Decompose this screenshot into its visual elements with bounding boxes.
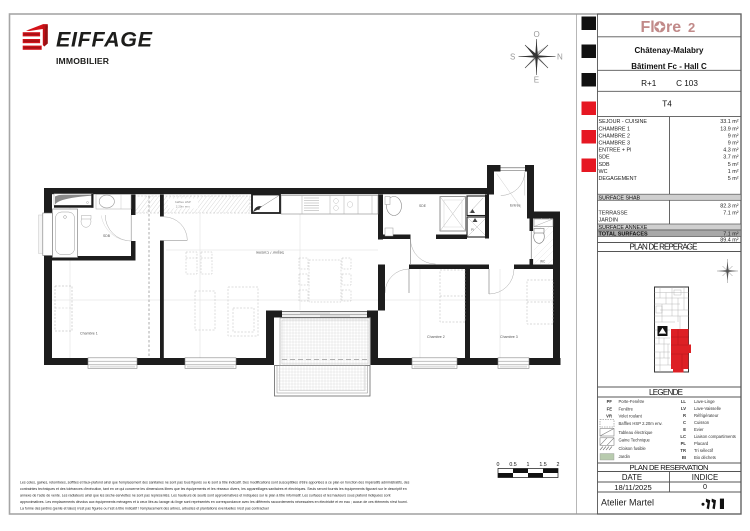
svg-text:Placard: Placard [694,441,709,446]
svg-text:LL: LL [681,399,687,404]
svg-text:O: O [534,30,540,39]
svg-text:Jardin: Jardin [619,454,631,459]
svg-text:La forme des jardins (pente et: La forme des jardins (pente et talus) n'… [20,506,269,510]
svg-text:5 m²: 5 m² [728,176,739,182]
svg-text:JARDIN: JARDIN [599,217,619,223]
svg-text:N: N [557,53,563,62]
svg-text:FE: FE [607,406,613,411]
svg-text:1.5: 1.5 [539,462,546,468]
svg-text:33.1 m²: 33.1 m² [720,119,738,125]
svg-text:INDICE: INDICE [692,473,718,482]
svg-text:SURFACE SHAB: SURFACE SHAB [599,195,641,201]
svg-text:9 m²: 9 m² [728,141,739,147]
svg-text:LV: LV [681,406,686,411]
svg-text:S: S [510,53,515,62]
svg-text:annexe de l'acte de vente. Les: annexe de l'acte de vente. Les radiateur… [20,493,391,497]
svg-text:Gaine Technique: Gaine Technique [619,437,651,442]
svg-text:Cloison fusible: Cloison fusible [619,446,647,451]
svg-text:Liaison compartiments: Liaison compartiments [694,434,736,439]
svg-text:Atelier Martel: Atelier Martel [601,497,654,507]
svg-text:WC: WC [599,169,608,175]
svg-text:SEJOUR - CUISINE: SEJOUR - CUISINE [599,119,648,125]
svg-text:Lave-Vaisselle: Lave-Vaisselle [694,406,722,411]
svg-text:Entrée: Entrée [510,204,521,208]
svg-text:TOTAL SURFACES: TOTAL SURFACES [599,231,649,237]
svg-text:T4: T4 [662,99,672,108]
svg-text:VR: VR [606,414,612,419]
svg-text:Séjour / Cuisine: Séjour / Cuisine [255,251,284,256]
svg-text:82.3 m²: 82.3 m² [720,204,738,210]
svg-text:3.7 m²: 3.7 m² [723,155,738,161]
svg-text:C: C [683,420,686,425]
svg-text:Tri sélectif: Tri sélectif [694,448,714,453]
svg-text:Lave-Linge: Lave-Linge [694,399,715,404]
svg-text:2: 2 [688,20,695,35]
svg-text:TERRASSE: TERRASSE [599,211,628,217]
svg-text:BI: BI [682,455,686,460]
svg-text:Chambre 1: Chambre 1 [80,332,98,336]
svg-text:Chambre 2: Chambre 2 [427,335,445,339]
svg-text:C 103: C 103 [676,79,698,88]
svg-text:Châtenay-Malabry: Châtenay-Malabry [635,46,704,55]
svg-text:baffles HSP: baffles HSP [175,200,191,204]
svg-text:Fl: Fl [641,19,655,36]
svg-text:PF: PF [607,399,613,404]
svg-text:E: E [683,427,686,432]
svg-text:0.5: 0.5 [509,462,516,468]
svg-text:Porte-Fenêtre: Porte-Fenêtre [619,399,646,404]
svg-text:Pl: Pl [471,228,474,232]
svg-text:DEGAGEMENT: DEGAGEMENT [599,176,638,182]
svg-text:IMMOBILIER: IMMOBILIER [56,56,110,66]
svg-text:E: E [534,76,539,85]
svg-text:Volet roulant: Volet roulant [619,414,643,419]
svg-text:Bâtiment Fc - Hall C: Bâtiment Fc - Hall C [631,62,707,71]
svg-text:R+1: R+1 [641,79,657,88]
svg-text:1 m²: 1 m² [728,169,739,175]
svg-text:LC: LC [680,434,686,439]
svg-text:TR: TR [680,448,686,453]
svg-text:DATE: DATE [622,473,642,482]
svg-text:Baffles HSP 2.20m env.: Baffles HSP 2.20m env. [619,421,663,426]
svg-text:SDE: SDE [419,204,427,208]
svg-text:0: 0 [497,462,500,468]
svg-text:2.20m env.: 2.20m env. [176,205,191,209]
svg-text:LEGENDE: LEGENDE [649,388,683,397]
svg-text:WC: WC [540,260,546,264]
svg-text:18/11/2025: 18/11/2025 [614,483,651,492]
svg-text:13.9 m²: 13.9 m² [720,126,738,132]
svg-text:CHAMBRE 1: CHAMBRE 1 [599,126,630,132]
svg-text:EIFFAGE: EIFFAGE [56,28,153,52]
svg-text:Evier: Evier [694,427,704,432]
svg-text:ENTREE + Pl: ENTREE + Pl [599,148,632,154]
svg-text:5 m²: 5 m² [728,162,739,168]
svg-text:Les cotes, gaines, retombées,: Les cotes, gaines, retombées, soffites e… [20,480,410,484]
svg-text:PLAN DE RESERVATION: PLAN DE RESERVATION [630,463,709,472]
svg-text:Chambre 3: Chambre 3 [500,335,518,339]
svg-text:approximatives. Les emplacemen: approximatives. Les emplacements dévolus… [20,500,408,504]
svg-text:CHAMBRE 2: CHAMBRE 2 [599,133,630,139]
svg-text:2: 2 [557,462,560,468]
svg-text:Cuisson: Cuisson [694,420,710,425]
svg-text:1: 1 [527,462,530,468]
svg-text:re: re [666,19,681,36]
svg-text:SDB: SDB [103,234,111,238]
svg-text:contraintes techniques et des: contraintes techniques et des tolérances… [20,487,407,491]
svg-text:Réfrigérateur: Réfrigérateur [694,413,719,418]
svg-text:89.4 m²: 89.4 m² [720,237,738,243]
svg-text:Tableau électrique: Tableau électrique [619,430,654,435]
svg-text:SDE: SDE [599,155,610,161]
svg-text:CHAMBRE 3: CHAMBRE 3 [599,141,630,147]
svg-text:9 m²: 9 m² [728,133,739,139]
svg-text:Bio déchets: Bio déchets [694,455,716,460]
svg-text:4.3 m²: 4.3 m² [723,148,738,154]
svg-text:SDB: SDB [599,162,610,168]
svg-text:PL: PL [681,441,687,446]
svg-text:Fenêtre: Fenêtre [619,406,634,411]
svg-text:R: R [683,413,686,418]
svg-text:PLAN DE REPERAGE: PLAN DE REPERAGE [630,242,698,251]
svg-text:7.1 m²: 7.1 m² [723,211,738,217]
svg-text:0: 0 [703,482,707,491]
